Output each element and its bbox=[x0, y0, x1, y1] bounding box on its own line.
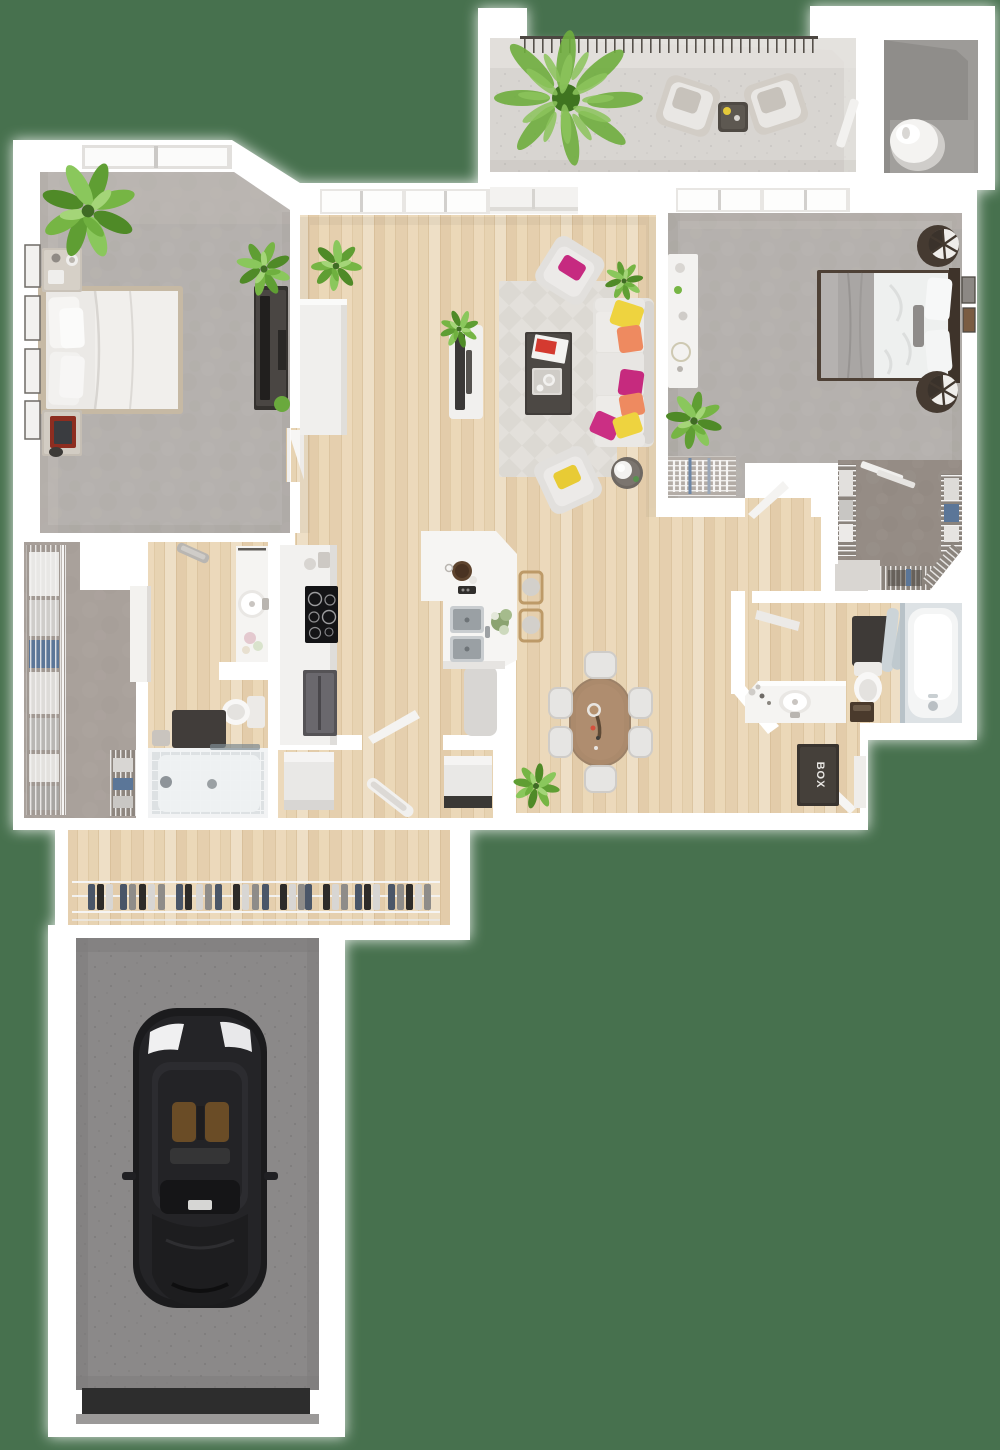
svg-text:BOX: BOX bbox=[814, 762, 826, 789]
